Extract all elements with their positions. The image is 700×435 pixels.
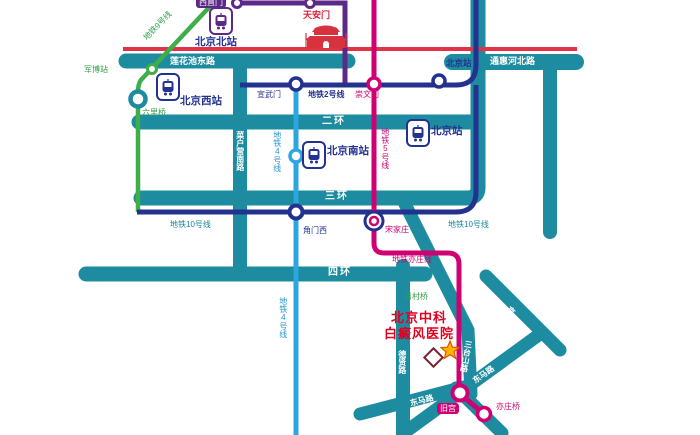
road-label-dexian: 德贤路 (397, 350, 406, 374)
station-marker-yizhuangqiao (478, 408, 491, 421)
line-label-line4-upper: 地铁4号线 (272, 131, 281, 172)
station-marker-xuanwumen (290, 78, 302, 90)
hospital-star-icon (440, 340, 460, 365)
station-badge-beijing-station: 北京站 (446, 59, 472, 68)
station-badge-xizhimen: 西直门 (196, 0, 226, 8)
station-marker-top (306, 0, 315, 8)
road-label-caihuying: 菜户营南路 (235, 131, 244, 171)
label-tiananmen: 天安门 (303, 11, 330, 21)
station-marker-jiaomenxi (290, 206, 303, 219)
road-label-ring4: 四环 (328, 267, 352, 278)
station-label-liuliqiao: 六里桥 (142, 109, 166, 118)
station-badge-jiugong: 旧宫 (437, 403, 459, 414)
station-label-songjiazhuang: 宋家庄 (385, 226, 409, 235)
line-label-yizhuang: 地铁亦庄线 (392, 256, 432, 265)
line-label-line10-left: 地铁10号线 (170, 221, 211, 230)
station-marker-chongwenmen (368, 78, 380, 90)
station-marker-beijing-station (433, 75, 445, 87)
station-marker-junbo (148, 65, 157, 74)
station-label-junbo: 军博站 (84, 66, 108, 75)
station-label-xuanwumen: 宣武门 (257, 91, 281, 100)
station-label-chongwenmen: 崇文门 (355, 91, 379, 100)
station-marker-songjiazhuang-inner (370, 217, 378, 225)
train-station-icon-beijing-south (302, 141, 326, 169)
station-label-beijing-west: 北京西站 (180, 96, 222, 108)
station-marker-beijing-west (131, 92, 146, 107)
train-station-icon-beijing-north (209, 7, 233, 35)
hospital-name: 北京中科 白癜风医院 (384, 310, 454, 342)
station-label-beijing-north: 北京北站 (195, 37, 237, 49)
line-label-line5: 地铁5号线 (380, 128, 389, 169)
station-label-beijing-south: 北京南站 (327, 146, 369, 158)
road-label-xiaocunqiao: 肖村桥 (404, 293, 428, 302)
tiananmen-gate-icon (303, 22, 349, 53)
line-2-blue (240, 0, 476, 85)
road-label-tonghui: 通惠河北路 (490, 57, 535, 67)
line-label-line4-lower: 地铁4号线 (278, 297, 287, 338)
train-station-icon-beijing-west (156, 73, 180, 101)
train-station-icon-beijing-station (406, 119, 430, 147)
station-label-beijing-station: 北京站 (431, 126, 463, 138)
station-label-jiaomenxi: 角门西 (303, 227, 327, 236)
road-label-lianhuachi: 莲花池东路 (170, 57, 215, 67)
station-label-yizhuangqiao: 亦庄桥 (496, 403, 520, 412)
hospital-name-line1: 北京中科 (384, 310, 454, 326)
line-label-line10-right: 地铁10号线 (448, 221, 489, 230)
line-label-line2: 地铁2号线 (308, 91, 344, 100)
station-marker-beijing-south (290, 150, 302, 162)
station-marker-xizhimen (233, 0, 242, 8)
station-marker-jiugong (453, 386, 468, 401)
road-label-ring2: 二环 (322, 116, 346, 127)
transit-map-canvas: 西直门 北京北站 地铁9号线 军博站 北京西站 六里桥 莲花池东路 通惠河北路 … (0, 0, 700, 435)
road-label-ring3: 三环 (325, 191, 349, 202)
